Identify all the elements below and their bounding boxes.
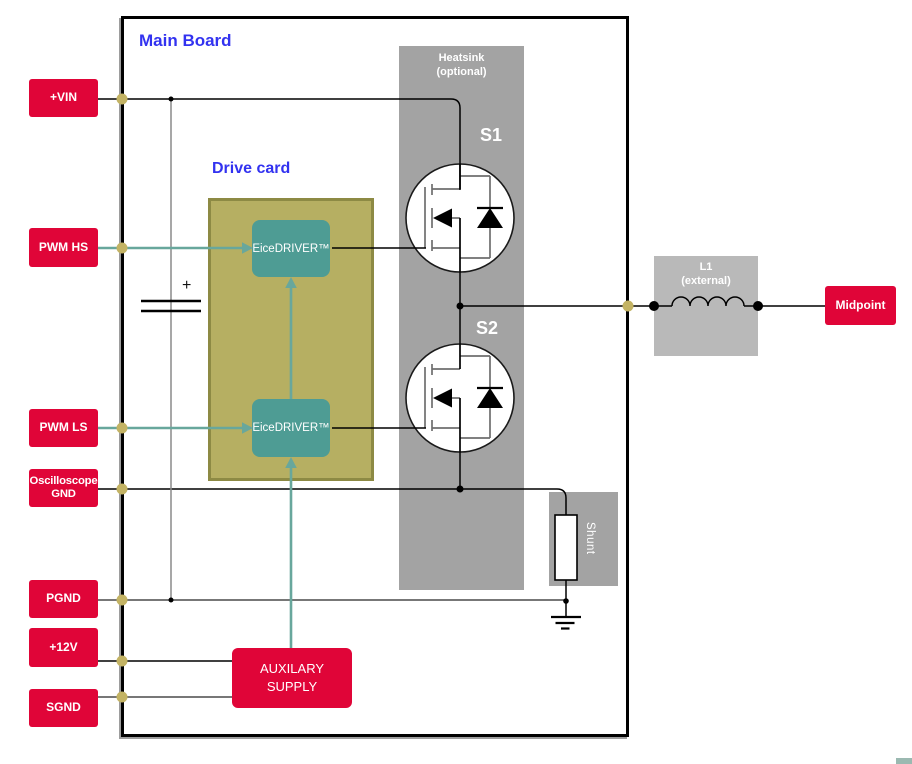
terminal-vin: +VIN [29,79,98,117]
terminal-pwm-hs: PWM HS [29,228,98,267]
corner-fragment [896,758,912,764]
terminal-pwm-ls: PWM LS [29,409,98,447]
heatsink-note: (optional) [436,66,486,78]
auxiliary-supply-box: AUXILARY SUPPLY [232,648,352,708]
heatsink-label: Heatsink (optional) [399,52,524,80]
aux-supply-line1: AUXILARY [260,660,324,678]
inductor-note: (external) [681,275,731,287]
main-board-title: Main Board [139,31,232,51]
heatsink-name: Heatsink [439,52,485,64]
inductor-label: L1 (external) [654,261,758,289]
terminal-12v: +12V [29,628,98,667]
eicedriver-ls-box: EiceDRIVER™ [252,399,330,457]
terminal-midpoint: Midpoint [825,286,896,325]
terminal-sgnd: SGND [29,689,98,727]
terminal-oscilloscope-gnd: Oscilloscope GND [29,469,98,507]
eicedriver-hs-box: EiceDRIVER™ [252,220,330,277]
switch-s1-label: S1 [480,125,502,146]
terminal-pgnd: PGND [29,580,98,618]
inductor-name: L1 [700,261,713,273]
switch-s2-label: S2 [476,318,498,339]
main-board-outline [121,16,629,737]
aux-supply-line2: SUPPLY [267,678,317,696]
heatsink-block [399,46,524,590]
capacitor-polarity-label: + [182,277,191,295]
shunt-label: Shunt [582,505,598,571]
drive-card-title: Drive card [212,160,290,178]
half-bridge-diagram: Main Board Drive card Heatsink (optional… [0,0,912,764]
